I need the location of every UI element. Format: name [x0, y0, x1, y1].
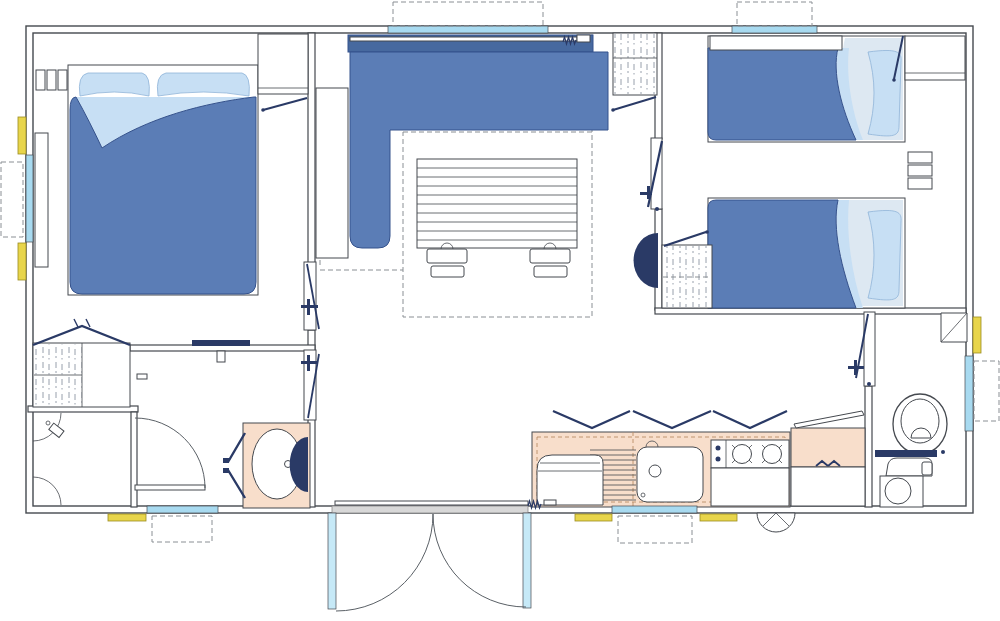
- hob-knob: [716, 446, 721, 451]
- awning-marker: [393, 2, 543, 26]
- flip-top-cabinet: [791, 467, 865, 506]
- floor-plan: Mobile home floor plan (2 bedrooms): [0, 0, 1000, 621]
- cistern: [875, 450, 937, 457]
- bedside-shelf-slat: [47, 70, 56, 90]
- wardrobe-door-open: [263, 98, 307, 110]
- hall-window: [147, 506, 218, 513]
- shower-door-swing: [135, 418, 205, 488]
- step-marker: [700, 514, 737, 521]
- twin-bedroom: [662, 2, 965, 308]
- flip-top-unit: [791, 428, 865, 467]
- wall-bedroom-living: [308, 33, 315, 263]
- two-burner-hob: [711, 440, 789, 468]
- between-bed-shelves: [908, 152, 932, 189]
- door-glass-right: [523, 513, 531, 608]
- twin-wardrobe: [662, 230, 712, 308]
- step-marker: [18, 117, 26, 154]
- single-bed-bottom: [708, 198, 905, 308]
- tall-wardrobe: [258, 34, 308, 94]
- drain: [649, 465, 661, 477]
- shower-tray-corner: [33, 477, 61, 505]
- side-unit: [316, 88, 348, 258]
- burner: [733, 445, 752, 464]
- fridge: [537, 455, 603, 505]
- lift-up-doors: [33, 326, 130, 345]
- wall-bracket: [137, 374, 147, 379]
- bathroom-door: [301, 350, 319, 420]
- wardrobe-door-open: [664, 232, 706, 246]
- wardrobe-door-open: [613, 97, 656, 110]
- curtain-rail: [335, 501, 528, 505]
- step-marker: [108, 514, 146, 521]
- shower-head: [49, 423, 64, 437]
- headboard-shelf: [710, 36, 842, 50]
- overhead-cabinet: [553, 411, 630, 428]
- awning-marker: [618, 516, 692, 543]
- awning-marker: [152, 516, 212, 542]
- overhead-cabinet: [713, 411, 787, 428]
- living-window: [388, 26, 548, 33]
- living-area: [316, 33, 657, 277]
- flip-top-lid-open: [794, 411, 864, 428]
- wc-window: [965, 356, 973, 431]
- bedside-shelf-slat: [36, 70, 45, 90]
- bedside-shelf-slat: [58, 70, 67, 90]
- step-marker: [575, 514, 612, 521]
- sink: [637, 441, 703, 502]
- top-wall-openings: [388, 2, 548, 33]
- wall-shower-room: [131, 412, 137, 507]
- rail-bracket: [544, 500, 556, 505]
- bedroom-wardrobe: [33, 319, 130, 407]
- bifold-door: [228, 433, 245, 498]
- basin-bowl: [885, 478, 911, 504]
- overhead-cabinet: [633, 411, 711, 428]
- awning-marker: [1, 162, 23, 237]
- master-bedroom: [1, 34, 308, 295]
- shelf-rail: [192, 340, 250, 346]
- single-bed-top: [708, 36, 905, 142]
- curtain-rail: [350, 37, 577, 41]
- bathroom-vanity: [223, 423, 310, 508]
- hob-cabinet: [711, 468, 789, 506]
- shelf-bracket: [217, 351, 225, 362]
- awning-marker: [737, 2, 812, 26]
- shower-door-leaf: [135, 485, 205, 490]
- rail-bracket: [577, 35, 590, 42]
- corner-half-table: [634, 233, 658, 288]
- hob-knob: [716, 457, 721, 462]
- twin-bedroom-door: [640, 138, 662, 211]
- threshold: [332, 506, 528, 513]
- door-swing-right: [433, 514, 526, 607]
- awning-marker: [974, 361, 999, 421]
- floor-plan-drawing: [0, 0, 1000, 621]
- burner: [763, 445, 782, 464]
- slatted-table: [417, 159, 577, 248]
- side-shelf: [35, 133, 48, 267]
- duvet: [708, 48, 856, 140]
- duvet: [708, 200, 856, 308]
- twin-window: [732, 26, 817, 33]
- bedroom-door: [301, 262, 319, 330]
- step-marker: [973, 317, 981, 353]
- step-marker: [18, 243, 26, 280]
- entrance: [328, 500, 556, 611]
- bedroom-window: [26, 155, 33, 242]
- gas-vent: [757, 513, 795, 532]
- wall-wc: [865, 386, 872, 507]
- door-glass-left: [328, 513, 336, 609]
- door-swing-left: [336, 514, 433, 611]
- kitchen-window: [612, 506, 697, 513]
- wall-twin-corridor: [655, 308, 966, 314]
- wc-door: [848, 312, 875, 386]
